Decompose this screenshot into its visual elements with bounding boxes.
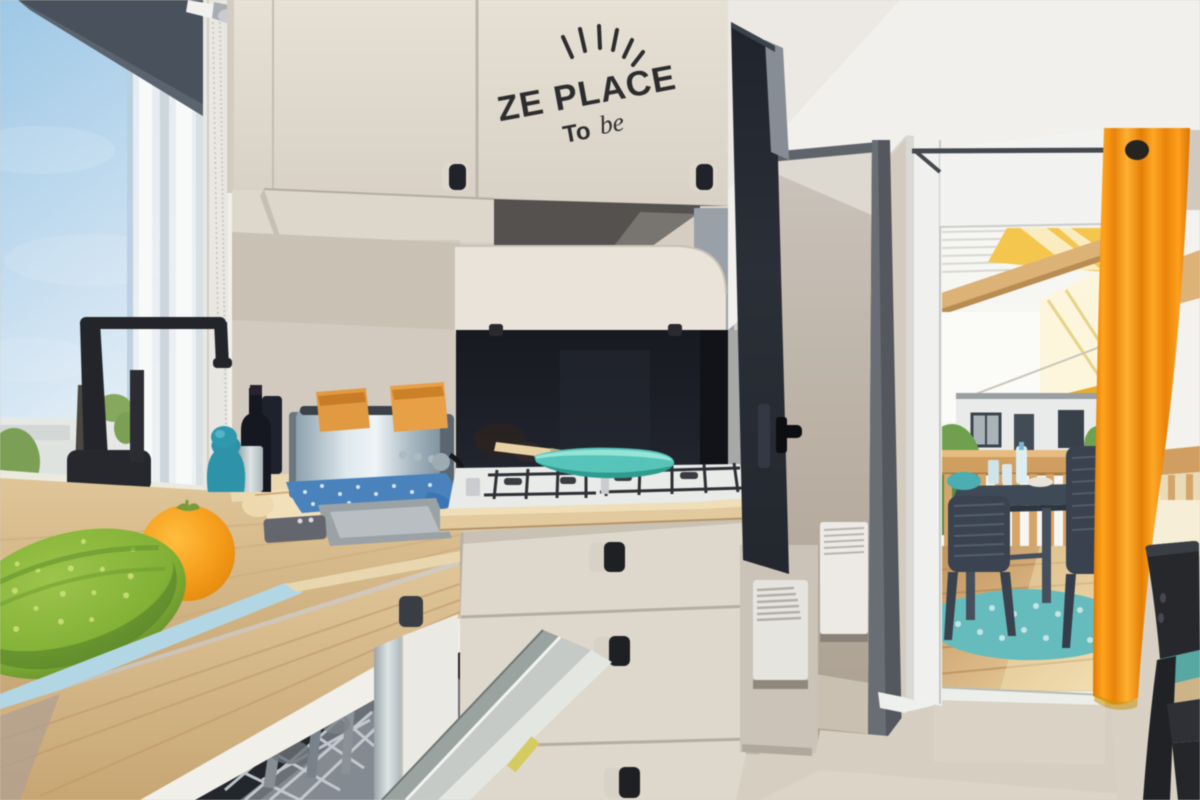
svg-text:be: be (597, 107, 626, 140)
svg-text:To: To (561, 117, 593, 149)
